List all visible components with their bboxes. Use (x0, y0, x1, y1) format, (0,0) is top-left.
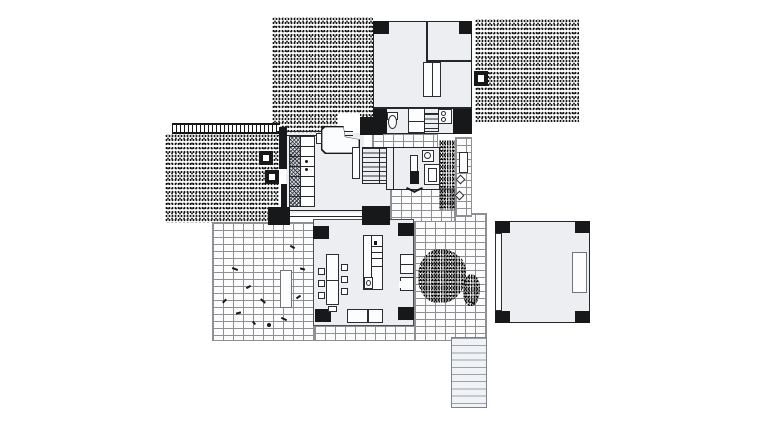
dining-chair (341, 288, 348, 295)
shelf-unit-east (400, 254, 414, 274)
dining-chair (318, 292, 325, 299)
garden-stipple-top-right (475, 19, 579, 122)
bath2-basin-bowl (424, 152, 431, 159)
pillar (268, 207, 290, 225)
pillar (575, 311, 590, 323)
stove-burner (305, 160, 308, 163)
pillar (373, 21, 389, 34)
planter-column-core (269, 174, 275, 180)
island-sink-bowl (366, 280, 371, 286)
garden-stipple-left (165, 134, 279, 223)
stove-burner (305, 168, 308, 171)
kitchen-shelf-line (289, 186, 315, 187)
stair-stringer (379, 147, 380, 184)
dining-chair (341, 264, 348, 271)
dining-chair (318, 268, 325, 275)
washbasin-bowl (441, 111, 446, 116)
sofa (368, 309, 383, 323)
wall-junction-block (360, 117, 383, 135)
wall-bedroom-divider (393, 147, 394, 190)
fireplace-opening (399, 281, 403, 288)
garden-bench (459, 152, 468, 173)
pillar (459, 21, 472, 34)
bed-foot-block (410, 171, 419, 184)
path-brick-north-strip (372, 133, 438, 148)
piano-bench (316, 133, 322, 144)
pavilion-west-wall (495, 233, 502, 311)
hall-door-panel (352, 147, 360, 179)
pillar (495, 221, 510, 233)
island-shelf-line (371, 246, 383, 247)
shower (424, 164, 440, 185)
dining-chair (318, 280, 325, 287)
stair-main (362, 147, 387, 184)
planter-column-core (263, 155, 269, 161)
chimney-flue (478, 75, 484, 82)
island-shelf-line (371, 252, 383, 253)
pillar (575, 221, 590, 233)
terrace-planter (280, 270, 292, 308)
wall-bath-east (453, 108, 472, 134)
toilet-bowl (388, 115, 397, 129)
dining-table (326, 254, 339, 305)
kitchen-shelf-line (289, 146, 315, 147)
island-divider (371, 235, 372, 279)
floor-plan (0, 0, 760, 422)
kitchen-shelf-line (289, 176, 315, 177)
terrace-brick-left (212, 222, 314, 341)
kitchen-shelf-line (289, 156, 315, 157)
pillar (362, 206, 390, 225)
pillar (398, 307, 414, 320)
island-shelf-line (371, 266, 383, 267)
wall-band-south-inner (288, 216, 364, 217)
stair-exterior (451, 337, 487, 408)
island-shelf-line (371, 258, 383, 259)
planting-strip (439, 140, 455, 210)
kitchen-shelf-line (289, 166, 315, 167)
kitchen-shelf-line (289, 196, 315, 197)
wall-band-west-upper (279, 127, 287, 169)
sofa (347, 309, 368, 323)
wardrobe (423, 62, 441, 97)
island-dot (374, 241, 377, 245)
dining-chair (341, 276, 348, 283)
dining-chair (328, 306, 337, 312)
wall-band-south-outer (288, 210, 364, 211)
pillar (495, 311, 510, 323)
pergola-trellis (172, 123, 280, 134)
pillar (398, 223, 414, 236)
bath-stair (424, 113, 439, 132)
pillar (313, 226, 329, 239)
terrace-dot (267, 323, 271, 327)
bath-cabinet (408, 108, 425, 133)
pavilion-door (572, 252, 587, 293)
wall-top-room-divider-v (426, 21, 428, 62)
washbasin-bowl (441, 117, 446, 122)
